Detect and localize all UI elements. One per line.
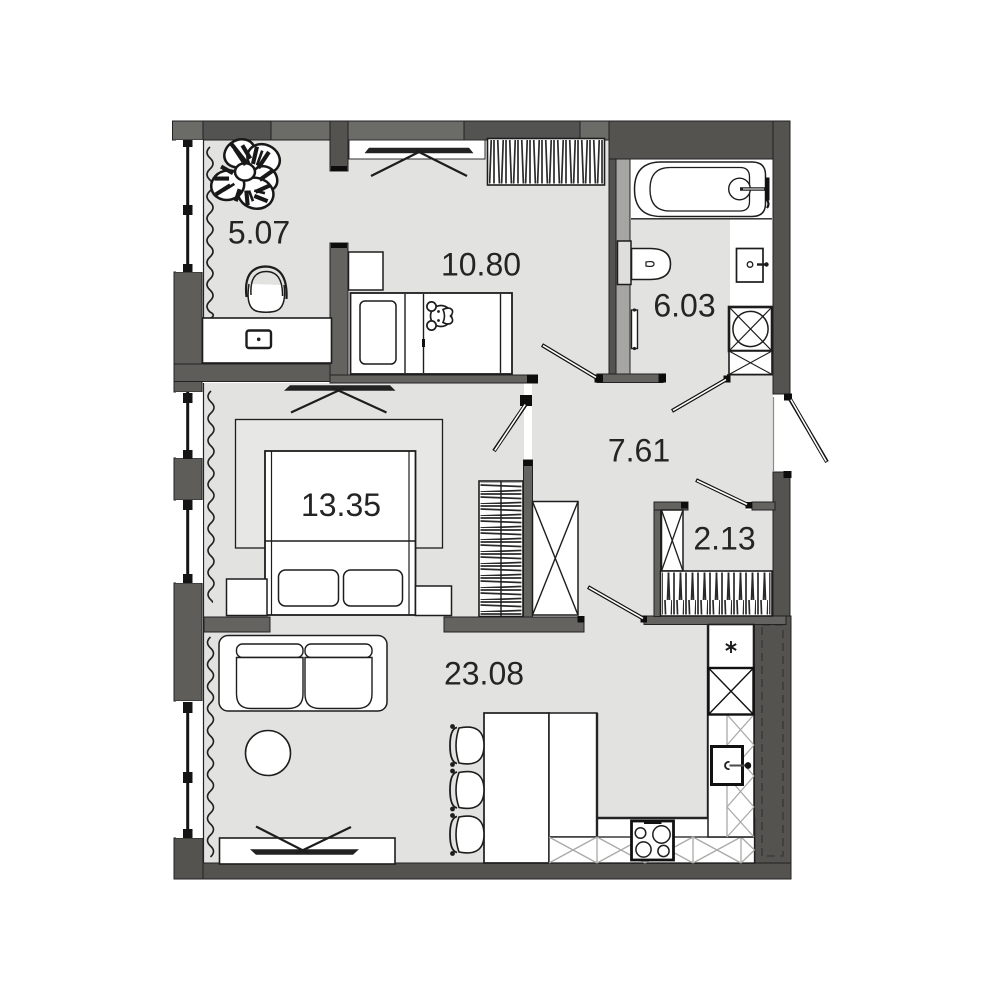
svg-text:6.03: 6.03 (653, 288, 715, 324)
svg-text:7.61: 7.61 (608, 433, 670, 469)
svg-text:5.07: 5.07 (228, 215, 290, 251)
svg-text:23.08: 23.08 (444, 656, 524, 692)
svg-text:10.80: 10.80 (441, 247, 521, 283)
svg-text:2.13: 2.13 (693, 521, 755, 557)
svg-text:13.35: 13.35 (301, 487, 381, 523)
